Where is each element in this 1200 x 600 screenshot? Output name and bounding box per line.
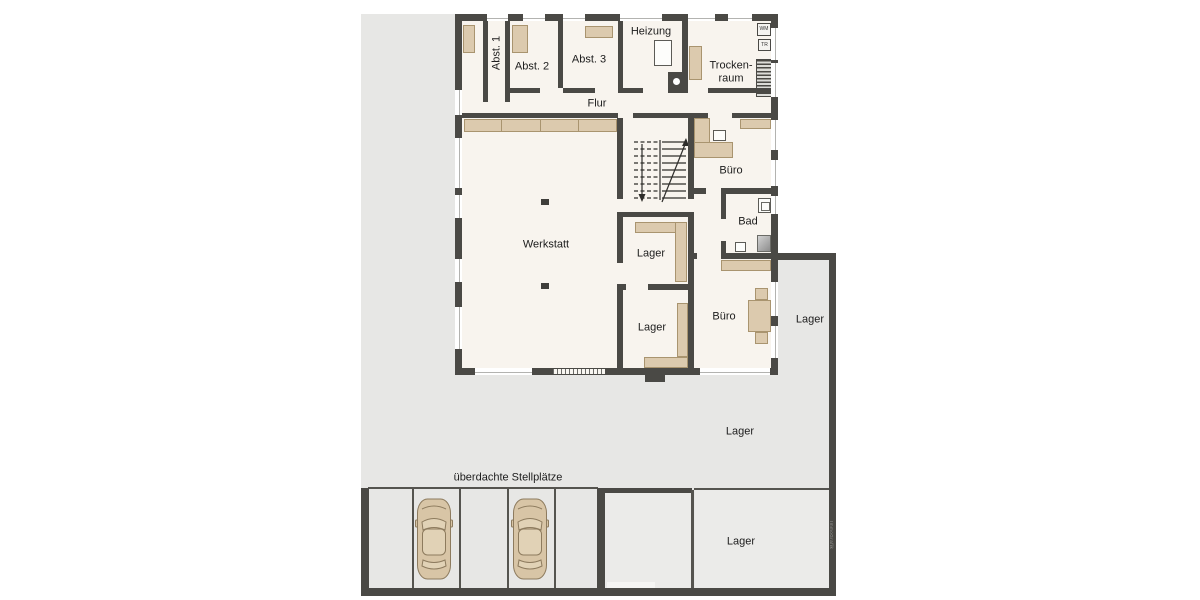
wall: [688, 118, 694, 368]
door-opening: [688, 198, 694, 213]
door-opening: [705, 188, 722, 194]
stairs-icon: [628, 136, 690, 214]
window: [771, 326, 778, 358]
wall: [462, 113, 618, 118]
window: [728, 14, 752, 21]
window: [688, 14, 715, 21]
window: [455, 90, 462, 115]
toilet: [735, 242, 746, 252]
wall: [558, 21, 563, 88]
door-opening: [617, 262, 623, 285]
wall: [597, 488, 605, 596]
wall: [708, 88, 771, 93]
wall: [623, 88, 643, 93]
window: [771, 120, 778, 150]
garage-door: [553, 368, 605, 375]
room-label-trockenraum: Trocken- raum: [696, 59, 766, 84]
wall: [778, 253, 836, 260]
room-label-werkstatt: Werkstatt: [523, 239, 569, 252]
carport-front-line: [368, 487, 598, 489]
room-label-lager-yard: Lager: [726, 426, 754, 439]
wall: [597, 488, 692, 493]
room-label-trockenraum-line1: Trocken-: [696, 59, 766, 72]
wall: [691, 490, 694, 588]
window: [771, 196, 778, 214]
shelf: [675, 222, 687, 282]
wall: [617, 118, 623, 368]
door-opening: [625, 284, 649, 290]
wall: [732, 113, 771, 118]
shelf: [721, 260, 771, 271]
door-opening: [617, 198, 623, 213]
window: [563, 14, 585, 21]
watermark: ImmoGrafik: [829, 521, 834, 549]
shelf: [463, 25, 475, 53]
window: [455, 259, 462, 282]
room-label-buero-top: Büro: [719, 165, 742, 178]
stall-divider: [412, 489, 414, 588]
boiler: [654, 40, 672, 66]
washing-machine-label: WM: [760, 27, 769, 32]
shelf: [585, 26, 613, 38]
window: [523, 14, 545, 21]
room-label-bad: Bad: [738, 216, 758, 229]
wall: [563, 88, 595, 93]
shelf: [740, 119, 771, 129]
carport-label: überdachte Stellplätze: [454, 472, 563, 485]
shelf: [677, 303, 688, 357]
washing-machine: WM: [757, 23, 771, 36]
room-label-trockenraum-line2: raum: [696, 72, 766, 85]
chimney-flue: [673, 78, 680, 85]
door-opening: [721, 218, 726, 242]
storage-room-unlabeled: [605, 493, 692, 588]
car-icon: [511, 496, 549, 582]
room-label-flur: Flur: [588, 98, 607, 111]
window: [771, 282, 778, 316]
desk: [694, 142, 733, 158]
window: [455, 195, 462, 218]
washbasin-bowl: [761, 202, 770, 211]
chair: [755, 288, 768, 300]
shower: [757, 235, 771, 252]
wall: [483, 21, 488, 102]
window: [475, 368, 532, 375]
window: [487, 14, 508, 21]
pillar: [541, 199, 549, 205]
room-label-lager-upper: Lager: [637, 248, 665, 261]
window: [620, 14, 662, 21]
window: [771, 160, 778, 186]
room-label-lager-lower: Lager: [638, 322, 666, 335]
window: [455, 138, 462, 188]
room-label-lager-side: Lager: [796, 314, 824, 327]
wall: [617, 212, 694, 217]
printer: [713, 130, 726, 141]
room-label-abst2: Abst. 2: [515, 61, 549, 74]
room-label-buero-lower: Büro: [712, 311, 735, 324]
window: [455, 307, 462, 349]
door-opening: [696, 253, 722, 259]
dryer: TR: [758, 39, 771, 51]
stall-divider: [459, 489, 461, 588]
wall: [694, 488, 829, 490]
wall: [618, 21, 623, 93]
door-step: [645, 369, 665, 382]
wall: [510, 88, 540, 93]
stall-divider: [507, 489, 509, 588]
workbench-divider: [540, 119, 541, 132]
stall-divider: [554, 489, 556, 588]
workbench-divider: [578, 119, 579, 132]
wall: [633, 113, 708, 118]
wall: [361, 488, 369, 596]
room-label-abst3: Abst. 3: [572, 54, 606, 67]
shelf: [512, 25, 528, 53]
dryer-label: TR: [761, 43, 768, 48]
room-label-lager-south: Lager: [727, 536, 755, 549]
floorplan: WM TR: [0, 0, 1200, 600]
shelf: [644, 357, 688, 368]
room-label-abst1: Abst. 1: [491, 36, 504, 70]
storage-room-lager: [695, 490, 829, 588]
pillar: [541, 283, 549, 289]
chair: [755, 332, 768, 344]
workbench-divider: [501, 119, 502, 132]
window: [700, 368, 770, 375]
car-icon: [415, 496, 453, 582]
desk: [748, 300, 771, 332]
window: [771, 28, 778, 60]
room-label-heizung: Heizung: [631, 26, 671, 39]
window: [771, 63, 778, 97]
